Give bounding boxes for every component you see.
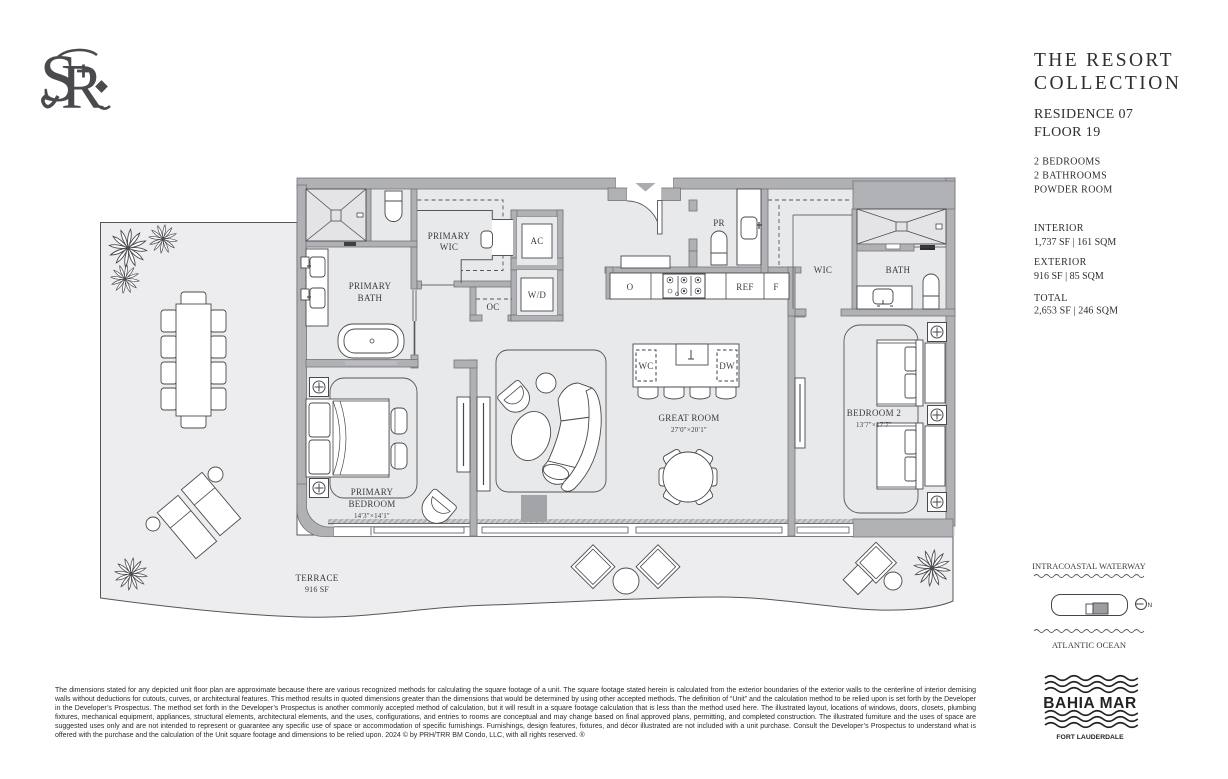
svg-text:RESIDENCE 07: RESIDENCE 07 xyxy=(1034,107,1133,122)
svg-text:BATH: BATH xyxy=(358,293,383,303)
svg-text:AC: AC xyxy=(530,236,543,246)
svg-text:BATH: BATH xyxy=(886,265,911,275)
svg-text:F: F xyxy=(773,282,778,292)
svg-text:INTRACOASTAL WATERWAY: INTRACOASTAL WATERWAY xyxy=(1032,561,1146,571)
svg-text:N: N xyxy=(1148,602,1153,609)
svg-text:WIC: WIC xyxy=(814,265,832,275)
svg-text:COLLECTION: COLLECTION xyxy=(1034,73,1181,94)
svg-text:POWDER ROOM: POWDER ROOM xyxy=(1034,185,1113,196)
svg-text:916 SF | 85 SQM: 916 SF | 85 SQM xyxy=(1034,271,1104,282)
svg-text:27′0″×20′1″: 27′0″×20′1″ xyxy=(671,426,707,434)
svg-text:14′3″×14′1″: 14′3″×14′1″ xyxy=(354,512,390,520)
svg-text:PRIMARY: PRIMARY xyxy=(428,231,471,241)
svg-text:DW: DW xyxy=(719,361,735,371)
svg-text:PRIMARY: PRIMARY xyxy=(351,487,394,497)
svg-text:W/D: W/D xyxy=(528,290,547,300)
svg-text:FLOOR 19: FLOOR 19 xyxy=(1034,125,1101,140)
svg-text:2,653 SF | 246 SQM: 2,653 SF | 246 SQM xyxy=(1034,306,1118,317)
svg-text:PRIMARY: PRIMARY xyxy=(349,281,392,291)
svg-text:WIC: WIC xyxy=(440,242,458,252)
svg-text:BEDROOM: BEDROOM xyxy=(348,499,395,509)
svg-text:1,737 SF | 161 SQM: 1,737 SF | 161 SQM xyxy=(1034,237,1116,248)
svg-text:BAHIA MAR: BAHIA MAR xyxy=(1043,695,1137,712)
svg-text:THE RESORT: THE RESORT xyxy=(1034,50,1174,71)
svg-text:TOTAL: TOTAL xyxy=(1034,293,1068,304)
svg-text:PR: PR xyxy=(713,218,725,228)
svg-text:13′7″×17′7″: 13′7″×17′7″ xyxy=(856,421,892,429)
svg-text:O: O xyxy=(627,282,634,292)
svg-text:INTERIOR: INTERIOR xyxy=(1034,223,1084,234)
svg-text:2 BATHROOMS: 2 BATHROOMS xyxy=(1034,171,1107,182)
svg-text:916 SF: 916 SF xyxy=(305,585,329,594)
svg-text:WC: WC xyxy=(638,361,653,371)
svg-text:GREAT ROOM: GREAT ROOM xyxy=(658,413,719,423)
svg-text:EXTERIOR: EXTERIOR xyxy=(1034,257,1087,268)
svg-text:ATLANTIC OCEAN: ATLANTIC OCEAN xyxy=(1052,640,1126,650)
svg-text:OC: OC xyxy=(486,302,499,312)
svg-text:TERRACE: TERRACE xyxy=(295,573,338,583)
svg-text:2 BEDROOMS: 2 BEDROOMS xyxy=(1034,157,1101,168)
svg-text:REF: REF xyxy=(736,282,753,292)
svg-text:BEDROOM 2: BEDROOM 2 xyxy=(847,408,901,418)
svg-text:FORT LAUDERDALE: FORT LAUDERDALE xyxy=(1056,734,1124,741)
